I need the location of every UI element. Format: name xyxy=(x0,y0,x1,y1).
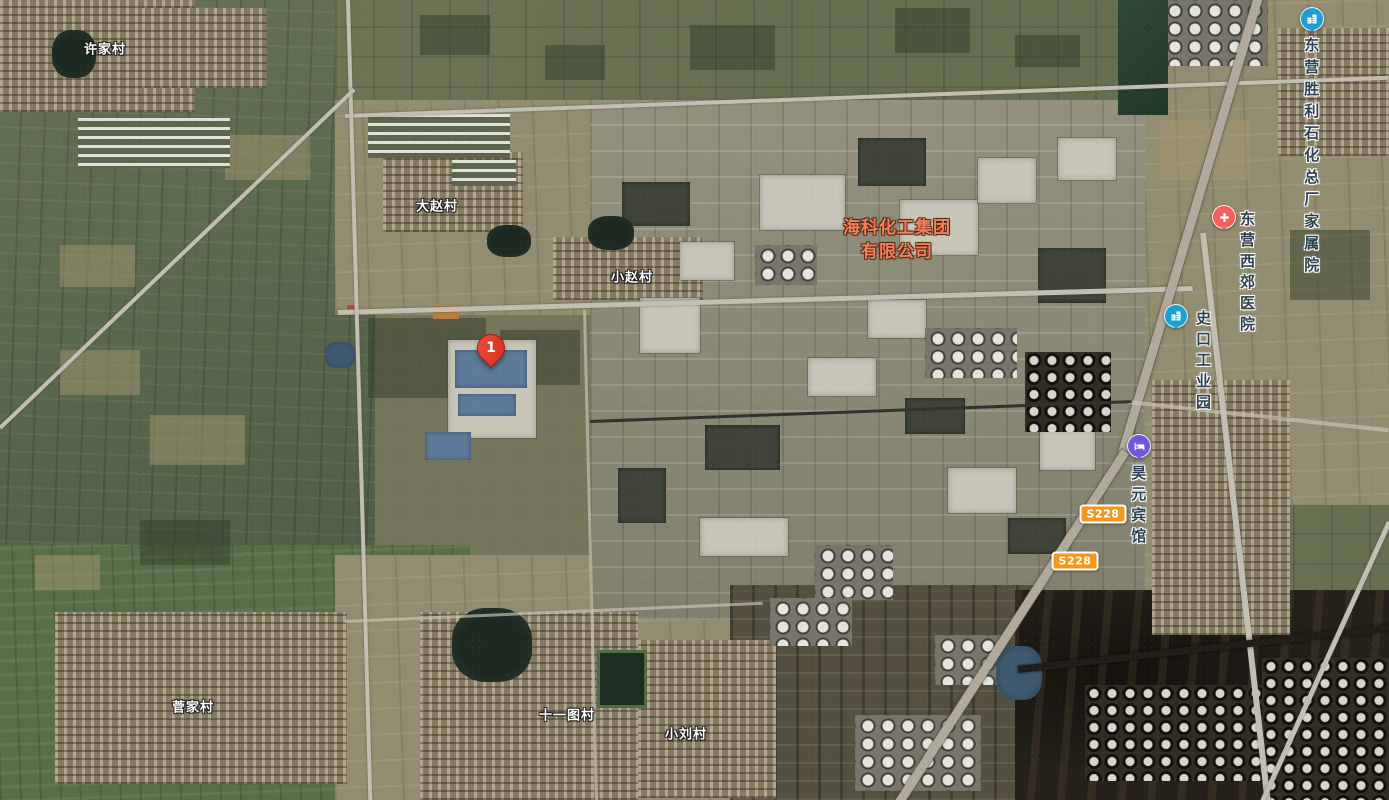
terrain-blk-d xyxy=(705,425,780,470)
poi-hotel-label[interactable]: 昊元宾馆 xyxy=(1131,462,1147,546)
terrain-tanks-l xyxy=(770,598,852,646)
terrain-tanks-d xyxy=(1085,685,1263,781)
poi-shengli-line2: 总厂家属院 xyxy=(1304,166,1320,276)
terrain-tanks-l xyxy=(755,245,817,285)
terrain-blk-d xyxy=(858,138,926,186)
poi-shikou-park-label[interactable]: 史口工业园 xyxy=(1196,307,1212,412)
terrain-patch-dark xyxy=(690,25,775,70)
terrain-patch-dark xyxy=(1290,230,1370,300)
village-label-jianjiacun: 菅家村 xyxy=(172,697,214,716)
terrain-patch-dark xyxy=(420,15,490,55)
terrain-blk-w xyxy=(948,468,1016,513)
terrain-blk-b xyxy=(458,394,516,416)
road-badge-s228-south: S228 xyxy=(1052,552,1099,571)
satellite-map-canvas[interactable]: 许家村 大赵村 小赵村 菅家村 十一图村 小刘村 海科化工集团 有限公司 东营胜… xyxy=(0,0,1389,800)
terrain-greenhouse xyxy=(368,114,510,158)
terrain-village xyxy=(1278,28,1389,156)
terrain-pond-green xyxy=(1118,0,1168,115)
terrain-patch-dark xyxy=(140,520,230,565)
village-label-shiyitucun: 十一图村 xyxy=(539,705,595,724)
village-label-xiaozhaocun: 小赵村 xyxy=(611,267,653,286)
residential-building-icon[interactable] xyxy=(1300,7,1324,31)
company-label-haike-chemical: 海科化工集团 有限公司 xyxy=(843,216,951,264)
village-label-xiaoliucun: 小刘村 xyxy=(665,724,707,743)
terrain-tanks-d xyxy=(1262,658,1389,800)
terrain-greenhouse xyxy=(452,160,516,186)
terrain-village xyxy=(638,640,776,798)
terrain-patch-tan xyxy=(150,415,245,465)
terrain-blk-w xyxy=(680,242,734,280)
poi-shengli-line1: 东营胜利石化 xyxy=(1304,34,1320,166)
terrain-blk-d xyxy=(618,468,666,523)
terrain-pond-dark xyxy=(452,608,532,682)
industrial-park-building-icon[interactable] xyxy=(1164,304,1188,328)
poi-shengli-label[interactable]: 东营胜利石化 总厂家属院 xyxy=(1304,34,1320,276)
terrain-village xyxy=(142,8,267,88)
terrain-patch-tan xyxy=(35,555,100,590)
terrain-greenhouse xyxy=(78,118,230,168)
terrain-pond-dark xyxy=(487,225,531,257)
poi-hospital-label[interactable]: 东营西郊医院 xyxy=(1240,208,1256,334)
satellite-imagery xyxy=(0,0,1389,800)
terrain-pond-frame xyxy=(597,650,647,708)
terrain-pond-blue xyxy=(996,646,1042,700)
terrain-patch-tan xyxy=(60,245,135,287)
terrain-blk-d xyxy=(905,398,965,434)
terrain-blk-w xyxy=(700,518,788,556)
hospital-cross-icon[interactable] xyxy=(1212,205,1236,229)
terrain-blk-w xyxy=(1058,138,1116,180)
terrain-blk-w xyxy=(868,300,926,338)
terrain-blk-w xyxy=(808,358,876,396)
terrain-pond-blue xyxy=(325,342,355,368)
terrain-patch-dark xyxy=(545,45,605,80)
terrain-blk-w xyxy=(1040,430,1095,470)
terrain-blk-b xyxy=(425,432,471,460)
company-label-line2: 有限公司 xyxy=(843,240,951,264)
road-badge-s228-north: S228 xyxy=(1080,505,1127,524)
terrain-blk-w xyxy=(760,175,845,230)
terrain-tanks-l xyxy=(925,328,1017,378)
bed-glyph xyxy=(1133,440,1146,453)
company-label-line1: 海科化工集团 xyxy=(843,216,951,240)
map-marker-1-number: 1 xyxy=(478,335,504,361)
terrain-pond-dark xyxy=(588,216,634,250)
terrain-patch-dark xyxy=(1015,35,1080,67)
terrain-tanks-l xyxy=(815,545,893,600)
hotel-bed-icon[interactable] xyxy=(1127,434,1151,458)
village-label-xujiacun: 许家村 xyxy=(84,39,126,58)
terrain-tanks-d xyxy=(1025,352,1111,432)
village-label-dazhaocun: 大赵村 xyxy=(416,196,458,215)
building-glyph xyxy=(1306,13,1318,25)
cross-glyph xyxy=(1218,211,1231,224)
building-glyph xyxy=(1170,310,1182,322)
terrain-blk-w xyxy=(978,158,1036,203)
terrain-blk-d xyxy=(622,182,690,226)
terrain-patch-dark xyxy=(895,8,970,53)
